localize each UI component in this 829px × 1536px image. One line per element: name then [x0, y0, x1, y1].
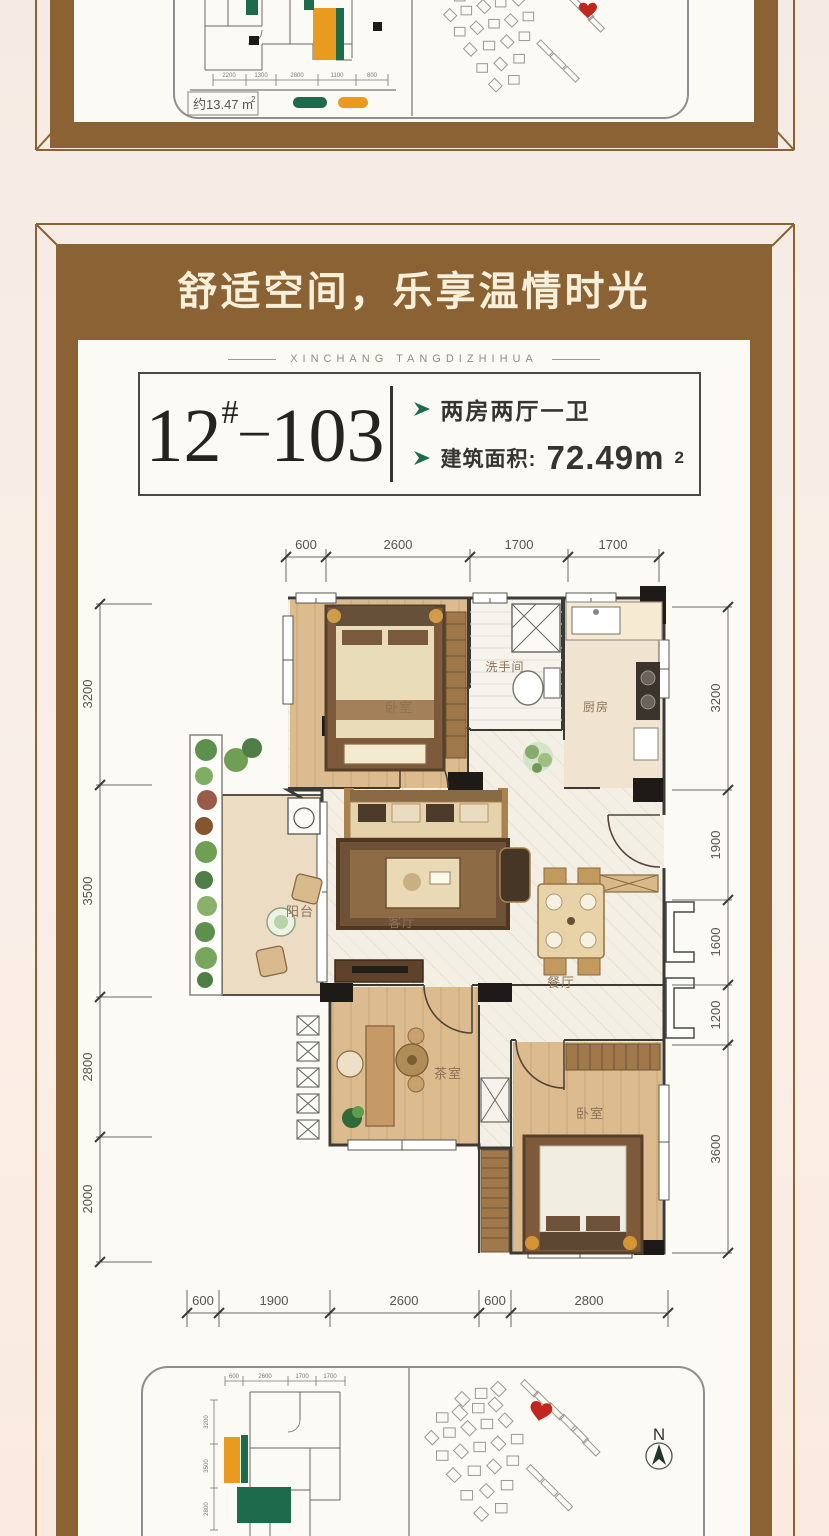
- legend-orange-pill: [338, 97, 368, 108]
- top-card-bottom-bar: [50, 122, 778, 148]
- dim-top-2: 1700: [505, 537, 534, 552]
- svg-text:2200: 2200: [222, 73, 236, 79]
- dim-left-1: 3500: [80, 877, 95, 906]
- svg-text:1100: 1100: [331, 73, 345, 79]
- mini-green-block-2: [304, 0, 314, 10]
- caption-rule-right: [552, 359, 600, 360]
- unit-room: 103: [271, 394, 385, 478]
- dim-left-2: 2800: [80, 1053, 95, 1082]
- unit-hash: #: [222, 394, 239, 431]
- mini-green-strip: [336, 8, 344, 60]
- floorplan: 卧室 洗手间 厨房 阳台 客厅 餐厅 茶室 卧室 600 2600 1700 1…: [78, 518, 742, 1330]
- svg-text:3200: 3200: [204, 1415, 210, 1429]
- top-card-right-rail: [754, 0, 778, 122]
- corridor-cabinet: [481, 1078, 509, 1122]
- brand-caption: XINCHANG TANGDIZHIHUA: [78, 349, 750, 369]
- site-map-bottom: [425, 1380, 600, 1522]
- mini-orange-unit: [224, 1437, 240, 1483]
- room-label: 阳台: [286, 904, 314, 919]
- unit-specs: 两房两厅一卫 建筑面积:72.49m2: [393, 392, 684, 477]
- mini-green-strip: [241, 1435, 248, 1483]
- mini-green-block: [237, 1487, 291, 1523]
- site-map-top: [444, 0, 605, 92]
- spec-area-value: 72.49m: [547, 439, 665, 477]
- unit-number: 12#–103: [140, 394, 390, 474]
- bottom-key-panel: 600 2600 1700 1700 3200 3500 2800 N: [138, 1363, 708, 1536]
- svg-text:3500: 3500: [204, 1459, 210, 1473]
- compass-needle-icon: [652, 1444, 666, 1465]
- top-card-left-rail: [50, 0, 74, 122]
- svg-text:800: 800: [367, 73, 378, 79]
- bedroom1-furniture: [326, 606, 466, 770]
- dim-right-0: 3200: [708, 684, 723, 713]
- green-arrow-icon: [413, 400, 431, 418]
- mini-column-2: [373, 22, 382, 31]
- ac-ledges: [297, 1016, 319, 1139]
- dim-right-1: 1900: [708, 831, 723, 860]
- compass: N: [646, 1425, 672, 1469]
- room-label: 客厅: [388, 915, 416, 930]
- spec-layout: 两房两厅一卫: [441, 392, 591, 426]
- room-label: 卧室: [576, 1106, 604, 1121]
- svg-text:2800: 2800: [290, 73, 304, 79]
- room-label: 餐厅: [547, 975, 575, 990]
- caption-text: XINCHANG TANGDIZHIHUA: [290, 353, 538, 365]
- compass-label: N: [653, 1425, 665, 1444]
- svg-text:2800: 2800: [204, 1502, 210, 1516]
- spec-area-sup: 2: [674, 448, 683, 468]
- room-label: 洗手间: [485, 660, 524, 674]
- svg-text:1700: 1700: [323, 1374, 337, 1380]
- dim-right-4: 3600: [708, 1135, 723, 1164]
- mini-orange-unit: [313, 8, 336, 60]
- room-label: 厨房: [583, 699, 609, 714]
- unit-title-box: 12#–103 两房两厅一卫 建筑面积:72.49m2: [138, 372, 701, 496]
- banner-title: 舒适空间，乐享温情时光: [56, 244, 772, 340]
- room-label: 卧室: [385, 700, 413, 715]
- top-key-panel: 2200 1300 2800 1100 800 约13.47 m 2: [170, 0, 690, 122]
- unit-block: 12: [146, 394, 222, 478]
- dim-right-3: 1200: [708, 1001, 723, 1030]
- dim-left-0: 3200: [80, 680, 95, 709]
- svg-text:600: 600: [229, 1374, 240, 1380]
- dim-top-1: 2600: [384, 537, 413, 552]
- unit-separator: –: [239, 398, 271, 460]
- main-card-right-rail: [750, 340, 772, 1536]
- stairwell: [666, 902, 694, 1038]
- mini-green-block: [246, 0, 258, 15]
- dim-bottom-4: 2800: [575, 1293, 604, 1308]
- green-arrow-icon: [413, 449, 431, 467]
- main-card-left-rail: [56, 340, 78, 1536]
- svg-text:1700: 1700: [295, 1374, 309, 1380]
- svg-text:2600: 2600: [258, 1374, 272, 1380]
- spec-area-row: 建筑面积:72.49m2: [413, 439, 684, 477]
- caption-rule-left: [228, 359, 276, 360]
- mini-column: [249, 36, 259, 45]
- area-label: 约13.47 m: [193, 97, 253, 112]
- dim-bottom-1: 1900: [260, 1293, 289, 1308]
- dim-top-3: 1700: [599, 537, 628, 552]
- entry-cabinet: [600, 875, 658, 892]
- location-marker-top: [579, 3, 597, 18]
- area-label-sup: 2: [251, 95, 256, 104]
- dim-left-3: 2000: [80, 1185, 95, 1214]
- dim-bottom-0: 600: [192, 1293, 214, 1308]
- spec-area-label: 建筑面积:: [441, 443, 537, 473]
- dim-bottom-2: 2600: [390, 1293, 419, 1308]
- room-label: 茶室: [434, 1066, 462, 1081]
- svg-text:1300: 1300: [254, 73, 268, 79]
- spec-layout-row: 两房两厅一卫: [413, 392, 684, 426]
- dim-top-0: 600: [295, 537, 317, 552]
- dim-bottom-3: 600: [484, 1293, 506, 1308]
- dim-right-2: 1600: [708, 928, 723, 957]
- legend-green-pill: [293, 97, 327, 108]
